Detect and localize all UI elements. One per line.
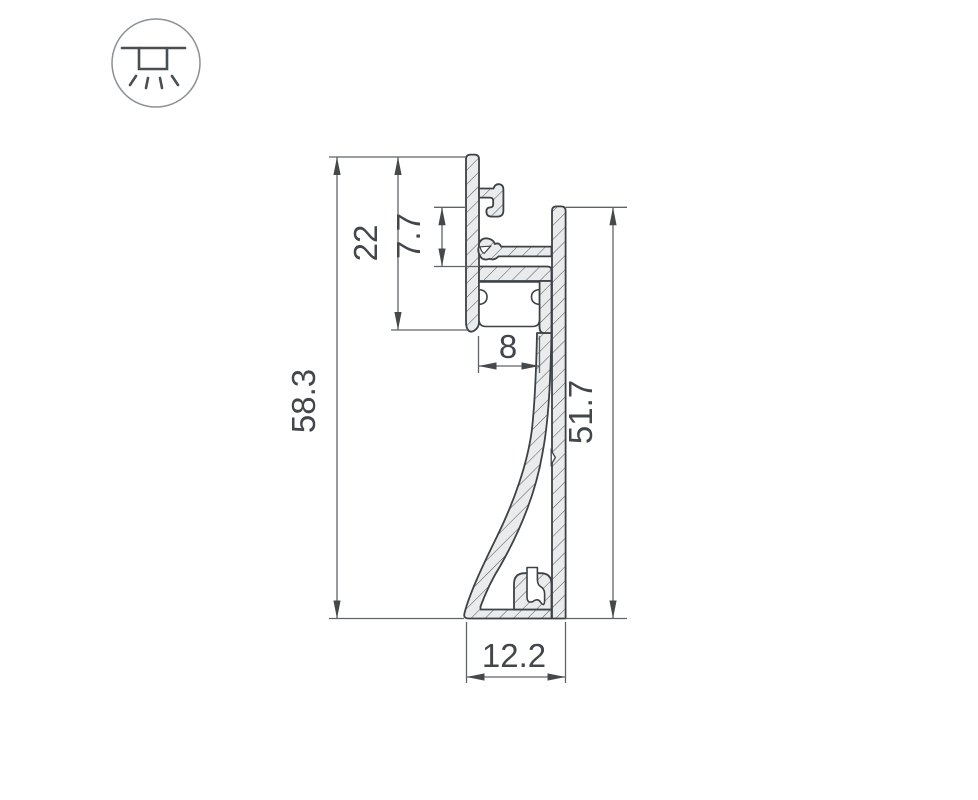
dim-label-wall-side: 51.7 <box>562 380 599 444</box>
profile-channel-top-plate <box>479 267 552 282</box>
dim-label-total-height: 58.3 <box>285 369 322 433</box>
arrowhead <box>394 157 401 175</box>
technical-drawing-page: 58.3 22 7.7 51.7 8 12.2 <box>0 0 978 800</box>
icon-ray-3 <box>160 78 162 88</box>
arrowhead <box>333 157 340 175</box>
arrowhead <box>438 249 445 267</box>
arrowhead <box>548 673 566 680</box>
icon-circle <box>112 19 200 107</box>
icon-ray-1 <box>130 76 136 85</box>
dim-label-tongue: 7.7 <box>390 213 427 259</box>
arrowhead <box>438 207 445 225</box>
profile-clip-flange <box>478 238 551 259</box>
arrowhead <box>609 207 616 225</box>
profile-body <box>464 155 565 619</box>
profile-cross-section-drawing: 58.3 22 7.7 51.7 8 12.2 <box>0 0 978 800</box>
recessed-light-icon <box>112 19 200 107</box>
profile-channel-right-cheek <box>540 281 552 333</box>
profile-upper-wing <box>466 155 479 332</box>
arrowhead <box>333 601 340 619</box>
led-strip-cavity <box>479 282 540 327</box>
dim-label-upper-section: 22 <box>347 225 384 262</box>
dim-label-slot-width: 8 <box>499 328 517 365</box>
icon-lamp-box <box>139 48 167 69</box>
dim-label-base-width: 12.2 <box>482 637 546 674</box>
arrowhead <box>394 312 401 330</box>
icon-ray-4 <box>172 76 178 85</box>
arrowhead <box>479 362 497 369</box>
arrowhead <box>467 673 485 680</box>
icon-ray-2 <box>146 78 148 88</box>
profile-drywall-hook <box>479 184 503 216</box>
arrowhead <box>609 601 616 619</box>
